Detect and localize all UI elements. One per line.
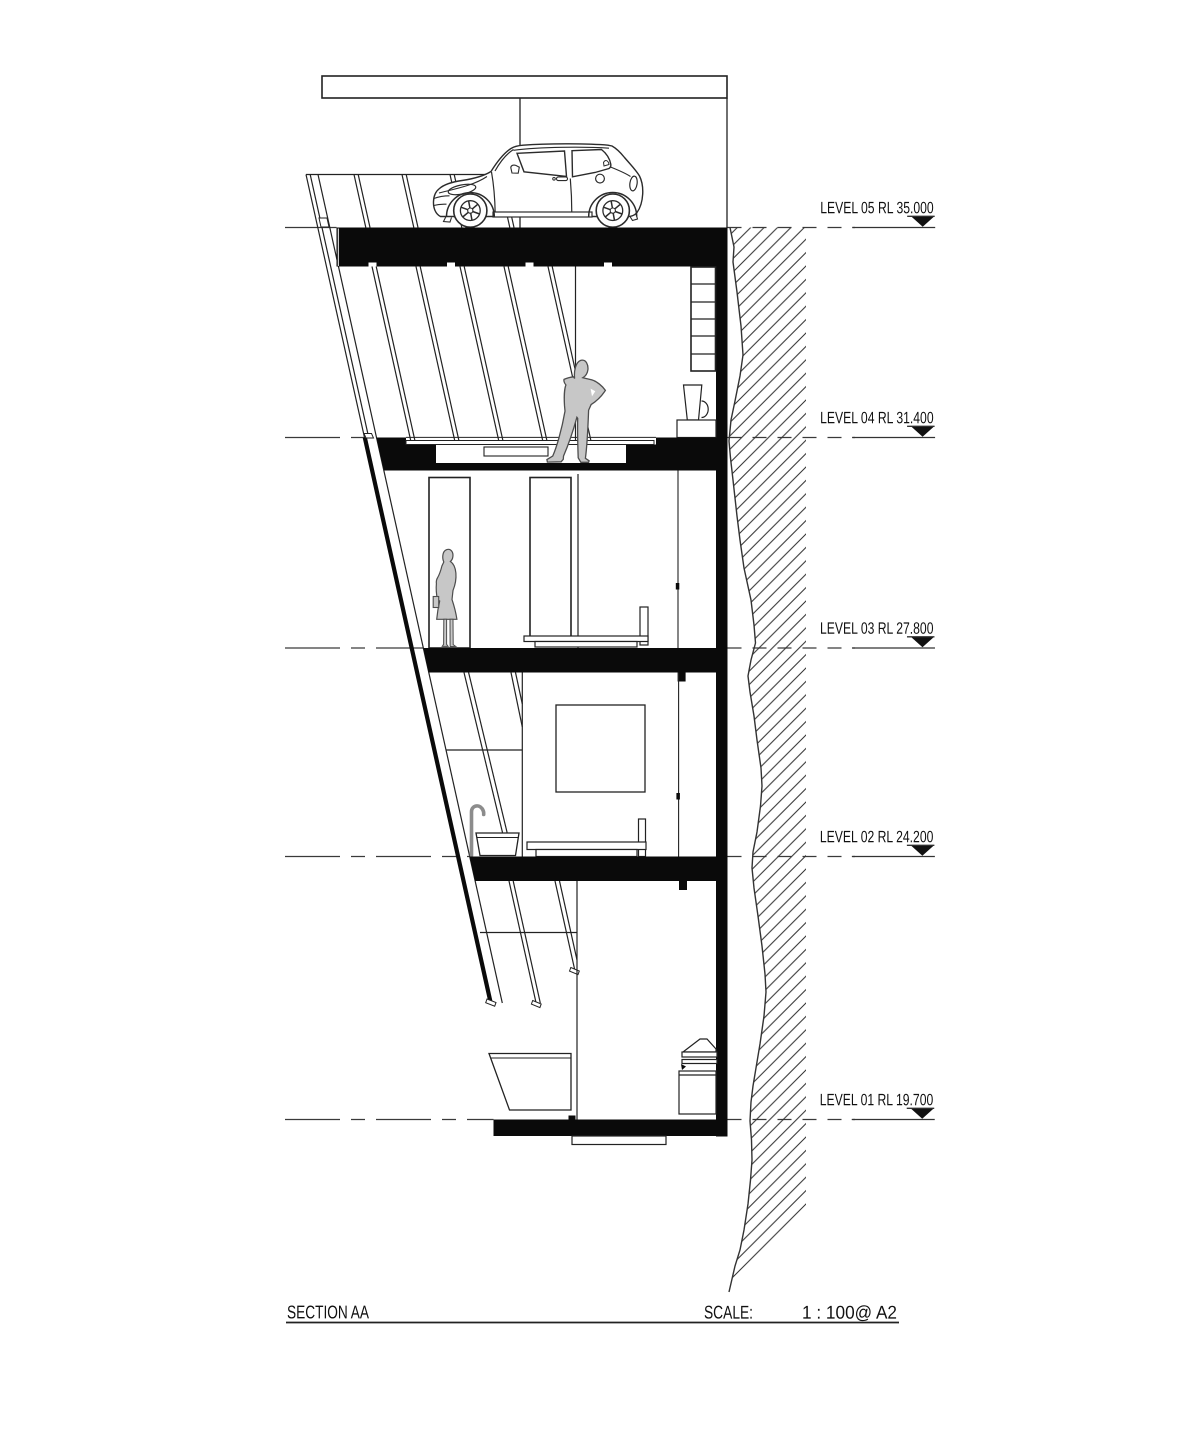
svg-text:LEVEL 01 RL 19.700: LEVEL 01 RL 19.700 xyxy=(820,1091,934,1109)
svg-text:SCALE:: SCALE: xyxy=(704,1302,753,1323)
svg-text:LEVEL 04 RL 31.400: LEVEL 04 RL 31.400 xyxy=(820,409,934,427)
svg-text:LEVEL 02 RL 24.200: LEVEL 02 RL 24.200 xyxy=(820,828,934,846)
svg-text:LEVEL 05 RL 35.000: LEVEL 05 RL 35.000 xyxy=(820,199,934,217)
svg-text:SECTION AA: SECTION AA xyxy=(287,1301,369,1322)
svg-text:1 : 100@ A2: 1 : 100@ A2 xyxy=(802,1302,897,1323)
svg-text:LEVEL 03 RL 27.800: LEVEL 03 RL 27.800 xyxy=(820,620,934,638)
